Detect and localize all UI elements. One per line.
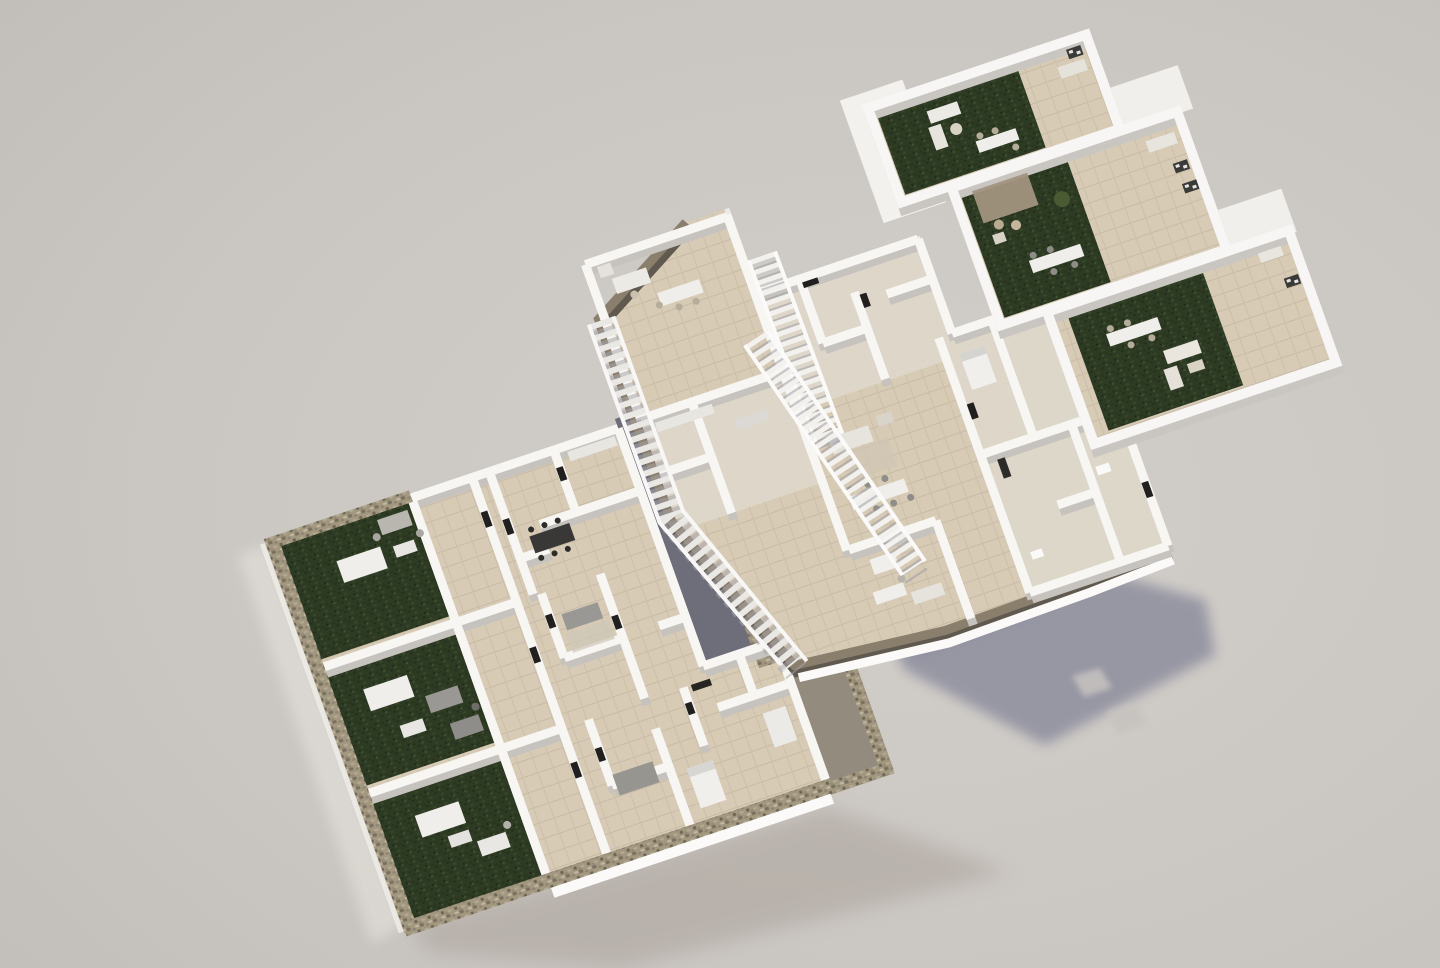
render-canvas — [0, 0, 1440, 968]
render-stage — [0, 0, 1440, 968]
